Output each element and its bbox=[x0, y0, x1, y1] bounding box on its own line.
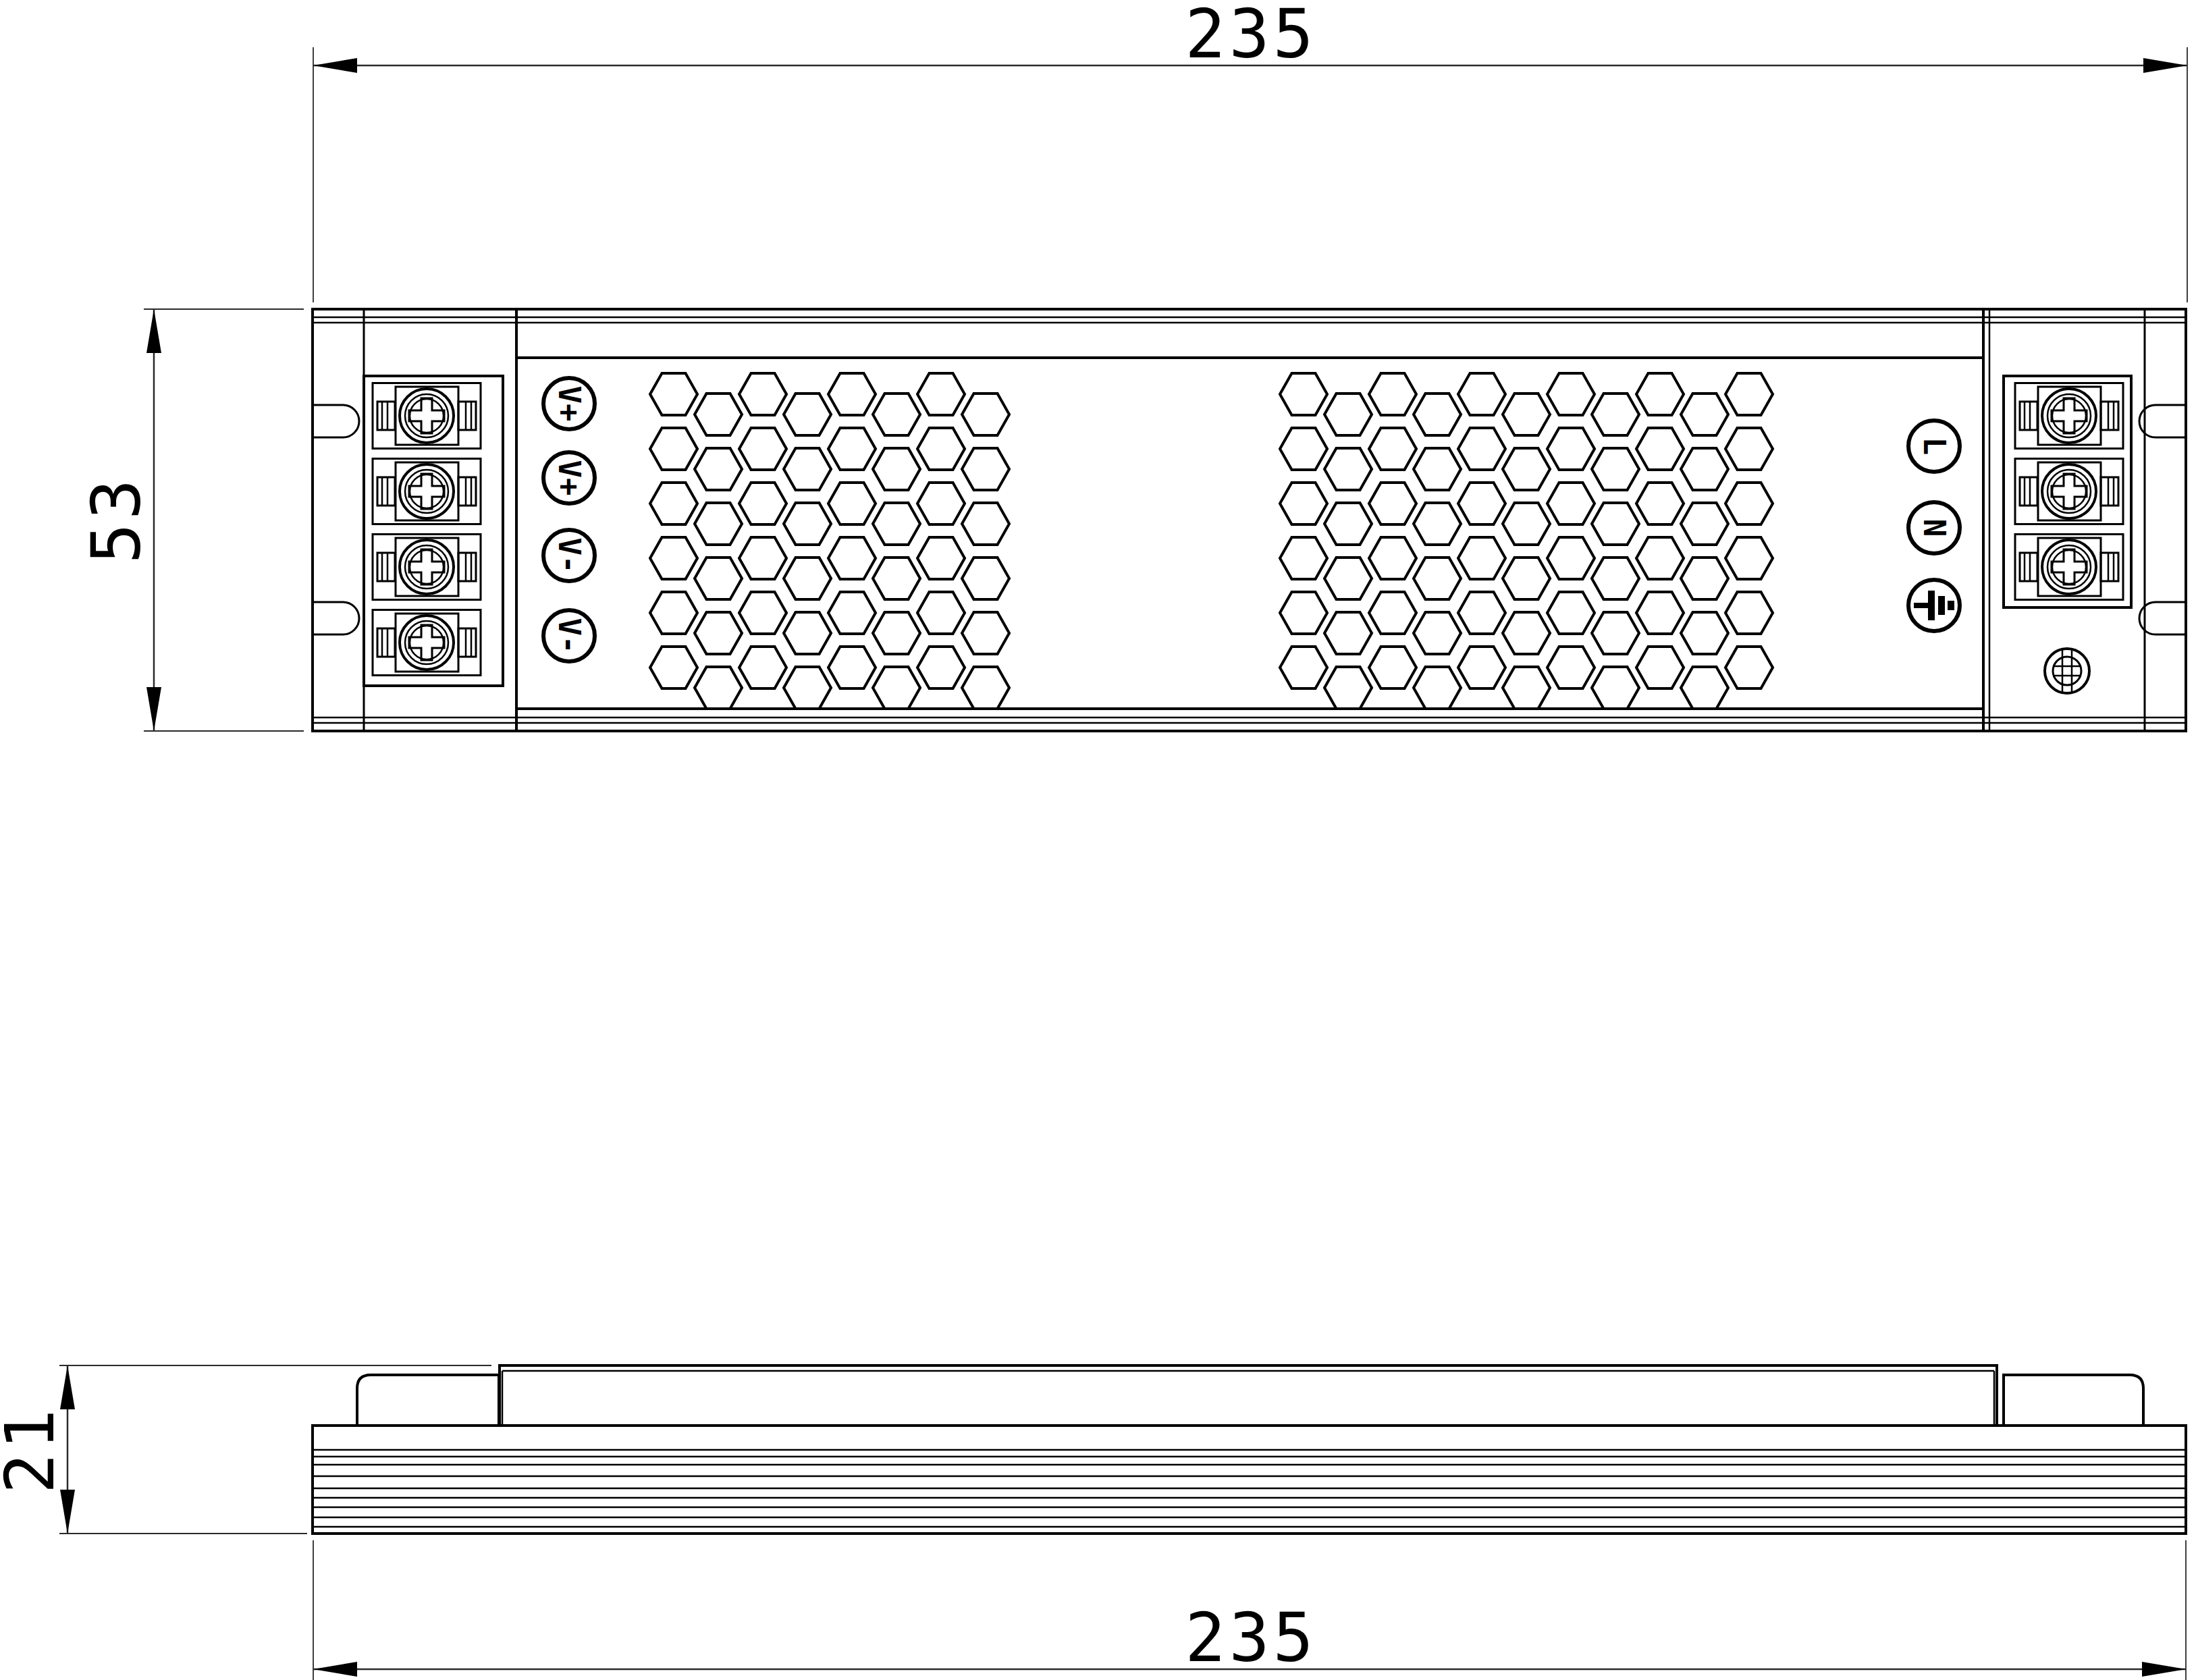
vent-hexagon bbox=[784, 448, 831, 490]
vent-hexagon bbox=[1547, 428, 1595, 470]
vent-hexagon bbox=[1725, 537, 1773, 579]
earth-ground-icon bbox=[1914, 591, 1951, 620]
vent-hexagon bbox=[695, 667, 742, 709]
vent-hexagon bbox=[695, 394, 742, 435]
vent-hexagon bbox=[1280, 592, 1327, 634]
vent-field-left bbox=[650, 373, 1009, 709]
vent-hexagon bbox=[1324, 612, 1372, 654]
vent-hexagon bbox=[828, 373, 876, 415]
vent-hexagon bbox=[1458, 373, 1505, 415]
vent-hexagon bbox=[650, 428, 697, 470]
vent-hexagon bbox=[784, 394, 831, 435]
dimension-value: 53 bbox=[77, 476, 156, 564]
vent-hexagon bbox=[1369, 373, 1416, 415]
vent-hexagon bbox=[1414, 503, 1461, 545]
vent-hexagon bbox=[1681, 612, 1728, 654]
vent-hexagon bbox=[1592, 558, 1639, 599]
terminal-cover-right bbox=[2004, 1375, 2143, 1426]
vent-hexagon bbox=[1725, 483, 1773, 524]
case-screw bbox=[2045, 649, 2089, 693]
dimension-bottom-width: 235 bbox=[313, 1540, 2186, 1680]
base-ribs bbox=[313, 1450, 2186, 1527]
vent-hexagon bbox=[784, 667, 831, 709]
vent-hexagon bbox=[1592, 394, 1639, 435]
vent-hexagon bbox=[873, 394, 920, 435]
vent-hexagon bbox=[1592, 448, 1639, 490]
vent-hexagon bbox=[1414, 394, 1461, 435]
arrow-down-icon bbox=[60, 1490, 75, 1534]
input-terminal-earth bbox=[2015, 535, 2123, 600]
vent-hexagon bbox=[695, 448, 742, 490]
label-v-plus-2: V+ bbox=[552, 460, 587, 496]
vent-hexagon bbox=[1280, 373, 1327, 415]
vent-hexagon bbox=[739, 537, 786, 579]
vent-hexagon bbox=[1636, 537, 1684, 579]
vent-hexagon bbox=[1592, 667, 1639, 709]
vent-hexagon bbox=[1547, 373, 1595, 415]
output-terminal-2 bbox=[373, 459, 481, 524]
arrow-right-icon bbox=[2142, 1662, 2186, 1677]
vent-hexagon bbox=[695, 503, 742, 545]
input-terminal-N bbox=[2015, 459, 2123, 524]
vent-hexagon bbox=[1458, 428, 1505, 470]
vent-hexagon bbox=[1503, 503, 1550, 545]
output-terminal-block bbox=[364, 376, 503, 686]
vent-hexagon bbox=[873, 612, 920, 654]
vent-hexagon bbox=[917, 537, 965, 579]
vent-hexagon bbox=[1369, 483, 1416, 524]
vent-hexagon bbox=[1324, 667, 1372, 709]
top-cover bbox=[500, 1365, 1997, 1426]
vent-hexagon bbox=[1681, 448, 1728, 490]
terminal-cover-left bbox=[357, 1375, 499, 1426]
vent-hexagon bbox=[1414, 448, 1461, 490]
arrow-right-icon bbox=[2143, 58, 2187, 73]
label-neutral: N bbox=[1917, 519, 1952, 537]
technical-drawing: V+ V+ V- V- L N bbox=[0, 0, 2196, 1680]
output-terminal-1 bbox=[373, 383, 481, 449]
vent-hexagon bbox=[650, 483, 697, 524]
vent-hexagon bbox=[873, 448, 920, 490]
vent-hexagon bbox=[828, 483, 876, 524]
vent-hexagon bbox=[917, 647, 965, 688]
vent-hexagon bbox=[1280, 428, 1327, 470]
vent-hexagon bbox=[1458, 483, 1505, 524]
arrow-left-icon bbox=[313, 58, 357, 73]
vent-hexagon bbox=[1592, 612, 1639, 654]
vent-hexagon bbox=[1369, 592, 1416, 634]
arrow-up-icon bbox=[146, 309, 161, 353]
vent-hexagon bbox=[1458, 592, 1505, 634]
vent-hexagon bbox=[917, 483, 965, 524]
profile-view bbox=[313, 1365, 2186, 1534]
dimension-top-width: 235 bbox=[313, 0, 2187, 302]
vent-hexagon bbox=[917, 373, 965, 415]
vent-hexagon bbox=[650, 373, 697, 415]
vent-hexagon bbox=[1547, 647, 1595, 688]
terminal-block-outline bbox=[2004, 376, 2131, 607]
mounting-slot bbox=[313, 405, 359, 437]
dimension-value: 235 bbox=[1185, 0, 1317, 74]
dimension-value: 235 bbox=[1185, 1598, 1317, 1677]
vent-hexagon bbox=[695, 612, 742, 654]
vent-hexagon bbox=[1547, 592, 1595, 634]
vent-hexagon bbox=[962, 612, 1009, 654]
vent-hexagon bbox=[784, 612, 831, 654]
vent-hexagon bbox=[962, 448, 1009, 490]
dimension-value: 21 bbox=[0, 1406, 70, 1494]
vent-hexagon bbox=[1324, 503, 1372, 545]
label-v-minus-1: V- bbox=[552, 538, 587, 574]
vent-hexagon bbox=[873, 558, 920, 599]
vent-hexagon bbox=[962, 667, 1009, 709]
vent-hexagon bbox=[1636, 592, 1684, 634]
mounting-slot bbox=[2139, 405, 2186, 437]
vent-hexagon bbox=[1280, 537, 1327, 579]
arrow-left-icon bbox=[313, 1662, 357, 1677]
vent-hexagon bbox=[1725, 647, 1773, 688]
vent-hexagon bbox=[1681, 394, 1728, 435]
vent-hexagon bbox=[1503, 667, 1550, 709]
mounting-slot bbox=[313, 602, 359, 634]
vent-hexagon bbox=[1725, 428, 1773, 470]
vent-hexagon bbox=[695, 558, 742, 599]
enclosure-outline bbox=[313, 309, 2186, 731]
vent-hexagon bbox=[1503, 394, 1550, 435]
vent-hexagon bbox=[917, 428, 965, 470]
vent-hexagon bbox=[1369, 537, 1416, 579]
vent-hexagon bbox=[1636, 428, 1684, 470]
input-labels: L N bbox=[1908, 421, 1960, 631]
output-labels: V+ V+ V- V- bbox=[543, 378, 595, 661]
vent-hexagon bbox=[1503, 558, 1550, 599]
input-terminal-block bbox=[2004, 376, 2131, 607]
vent-hexagon bbox=[1324, 448, 1372, 490]
vent-hexagon bbox=[1280, 647, 1327, 688]
vent-hexagon bbox=[873, 503, 920, 545]
vent-hexagon bbox=[739, 428, 786, 470]
vent-hexagon bbox=[828, 537, 876, 579]
arrow-down-icon bbox=[146, 687, 161, 731]
input-terminal-L bbox=[2015, 383, 2123, 449]
mounting-slot bbox=[2139, 602, 2186, 634]
dimension-body-height: 53 bbox=[77, 309, 304, 731]
label-line: L bbox=[1917, 437, 1952, 456]
vent-hexagon bbox=[739, 647, 786, 688]
label-v-minus-2: V- bbox=[552, 618, 587, 654]
vent-hexagon bbox=[1280, 483, 1327, 524]
vent-hexagon bbox=[1547, 483, 1595, 524]
vent-hexagon bbox=[650, 537, 697, 579]
vent-hexagon bbox=[873, 667, 920, 709]
output-terminal-3 bbox=[373, 535, 481, 600]
plan-view: V+ V+ V- V- L N bbox=[313, 309, 2186, 731]
vent-hexagon bbox=[1324, 558, 1372, 599]
vent-hexagon bbox=[1503, 448, 1550, 490]
vent-field-right bbox=[1280, 373, 1773, 709]
vent-hexagon bbox=[1458, 537, 1505, 579]
vent-hexagon bbox=[1681, 667, 1728, 709]
vent-hexagon bbox=[828, 647, 876, 688]
arrow-up-icon bbox=[60, 1365, 75, 1409]
vent-hexagon bbox=[1503, 612, 1550, 654]
vent-hexagon bbox=[1725, 592, 1773, 634]
vent-hexagon bbox=[1592, 503, 1639, 545]
vent-hexagon bbox=[1414, 558, 1461, 599]
vent-hexagon bbox=[1547, 537, 1595, 579]
vent-hexagon bbox=[962, 503, 1009, 545]
vent-hexagon bbox=[1636, 647, 1684, 688]
vent-hexagon bbox=[1636, 373, 1684, 415]
vent-hexagon bbox=[650, 592, 697, 634]
vent-hexagon bbox=[739, 592, 786, 634]
vent-hexagon bbox=[962, 558, 1009, 599]
vent-hexagon bbox=[1681, 558, 1728, 599]
vent-hexagon bbox=[1414, 667, 1461, 709]
vent-hexagon bbox=[1636, 483, 1684, 524]
vent-hexagon bbox=[917, 592, 965, 634]
vent-hexagon bbox=[739, 483, 786, 524]
vent-hexagon bbox=[739, 373, 786, 415]
vent-hexagon bbox=[784, 558, 831, 599]
vent-hexagon bbox=[1414, 612, 1461, 654]
vent-hexagon bbox=[1369, 647, 1416, 688]
vent-hexagon bbox=[1324, 394, 1372, 435]
vent-hexagon bbox=[828, 428, 876, 470]
vent-hexagon bbox=[1681, 503, 1728, 545]
vent-hexagon bbox=[1458, 647, 1505, 688]
terminal-block-outline bbox=[364, 376, 503, 686]
vent-hexagon bbox=[1369, 428, 1416, 470]
vent-hexagon bbox=[828, 592, 876, 634]
output-terminal-4 bbox=[373, 610, 481, 676]
vent-hexagon bbox=[650, 647, 697, 688]
vent-hexagon bbox=[1725, 373, 1773, 415]
vent-hexagon bbox=[962, 394, 1009, 435]
vent-hexagon bbox=[784, 503, 831, 545]
label-v-plus-1: V+ bbox=[552, 386, 587, 422]
